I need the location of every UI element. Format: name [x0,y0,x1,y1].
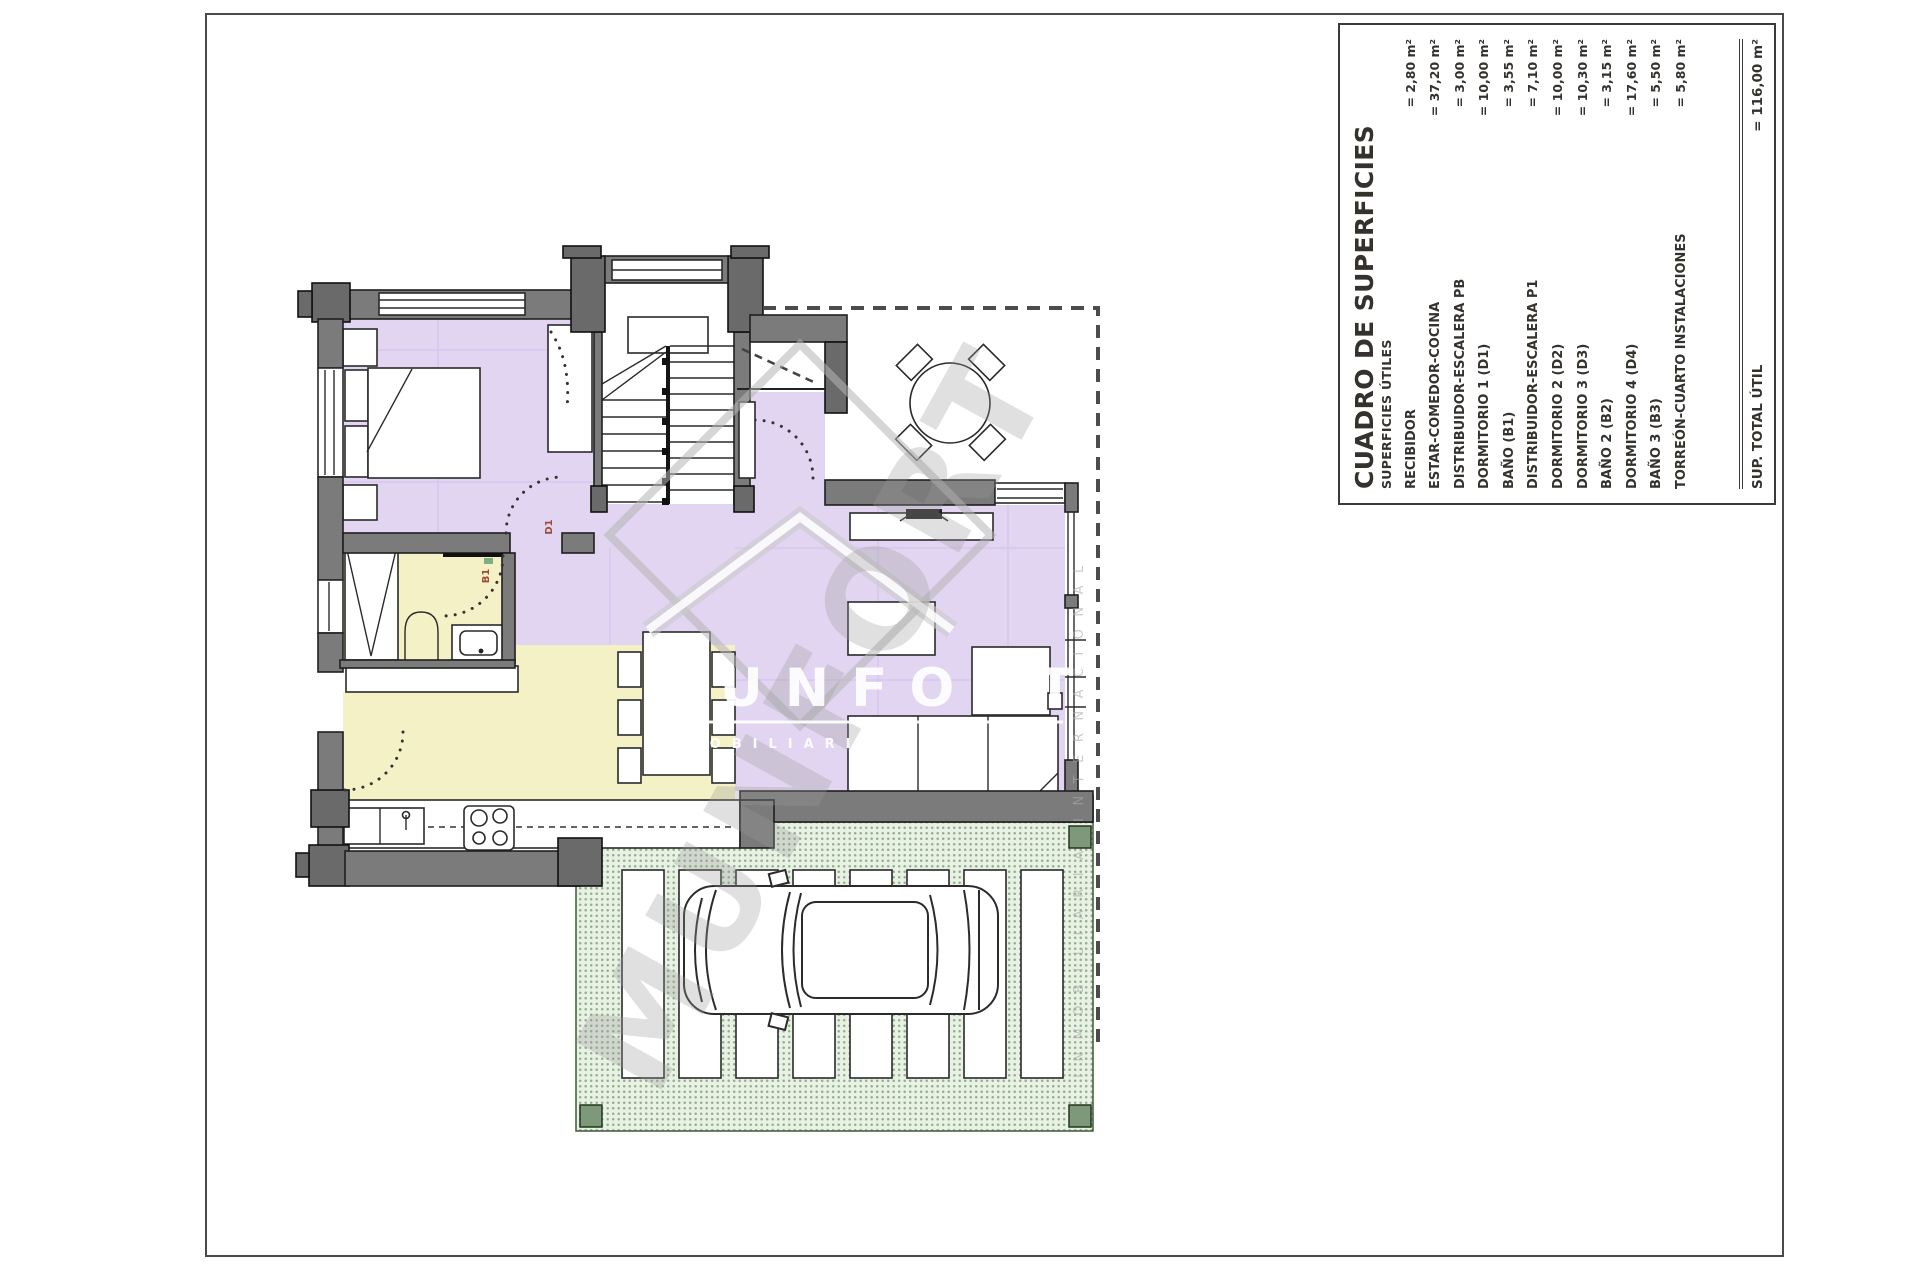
plan-sheet: D1 B1 MUNFORT MUNFORT INMOBILIARIA INMOB… [0,0,1920,1280]
row-label: DORMITORIO 2 (D2) [1551,344,1566,489]
row-label: RECIBIDOR [1404,409,1419,489]
row-value: = 5,80 m² [1673,39,1688,108]
row-value: = 37,20 m² [1427,39,1442,116]
table-row: TORREÓN-CUARTO INSTALACIONES= 5,80 m² [1673,39,1698,489]
row-value: = 3,55 m² [1501,39,1516,108]
surfaces-table: CUADRO DE SUPERFICIES SUPERFICIES ÚTILES… [1338,23,1776,505]
row-value: = 3,00 m² [1452,39,1467,108]
row-label: ESTAR-COMEDOR-COCINA [1428,302,1443,489]
total-value: = 116,00 m² [1750,39,1766,132]
row-value: = 7,10 m² [1525,39,1540,108]
row-value: = 10,00 m² [1550,39,1565,116]
row-label: DORMITORIO 1 (D1) [1477,344,1492,489]
row-label: DISTRIBUIDOR-ESCALERA P1 [1526,280,1541,489]
table-row: DORMITORIO 1 (D1)= 10,00 m² [1476,39,1501,489]
table-row: RECIBIDOR= 2,80 m² [1403,39,1428,489]
row-label: BAÑO 3 (B3) [1649,398,1664,489]
table-row: DORMITORIO 3 (D3)= 10,30 m² [1575,39,1600,489]
table-row: ESTAR-COMEDOR-COCINA= 37,20 m² [1427,39,1452,489]
row-label: DORMITORIO 4 (D4) [1625,344,1640,489]
row-value: = 5,50 m² [1648,39,1663,108]
table-row: DISTRIBUIDOR-ESCALERA P1= 7,10 m² [1525,39,1550,489]
row-label: BAÑO (B1) [1502,412,1517,489]
surfaces-table-title: CUADRO DE SUPERFICIES [1352,39,1378,489]
table-row: DISTRIBUIDOR-ESCALERA PB= 3,00 m² [1452,39,1477,489]
row-label: BAÑO 2 (B2) [1600,398,1615,489]
row-value: = 17,60 m² [1624,39,1639,116]
row-value: = 3,15 m² [1599,39,1614,108]
row-label: DORMITORIO 3 (D3) [1576,344,1591,489]
row-value: = 10,00 m² [1476,39,1491,116]
table-total-row: SUP. TOTAL ÚTIL = 116,00 m² [1739,39,1766,489]
row-label: DISTRIBUIDOR-ESCALERA PB [1453,279,1468,489]
surfaces-table-subtitle: SUPERFICIES ÚTILES [1379,39,1394,489]
total-label: SUP. TOTAL ÚTIL [1750,365,1766,489]
table-row: BAÑO 2 (B2)= 3,15 m² [1599,39,1624,489]
table-row: BAÑO 3 (B3)= 5,50 m² [1648,39,1673,489]
table-row: DORMITORIO 4 (D4)= 17,60 m² [1624,39,1649,489]
row-value: = 10,30 m² [1575,39,1590,116]
surfaces-table-rows: RECIBIDOR= 2,80 m² ESTAR-COMEDOR-COCINA=… [1403,39,1740,489]
table-row: DORMITORIO 2 (D2)= 10,00 m² [1550,39,1575,489]
table-row: BAÑO (B1)= 3,55 m² [1501,39,1526,489]
row-label: TORREÓN-CUARTO INSTALACIONES [1674,233,1689,489]
row-value: = 2,80 m² [1403,39,1418,108]
